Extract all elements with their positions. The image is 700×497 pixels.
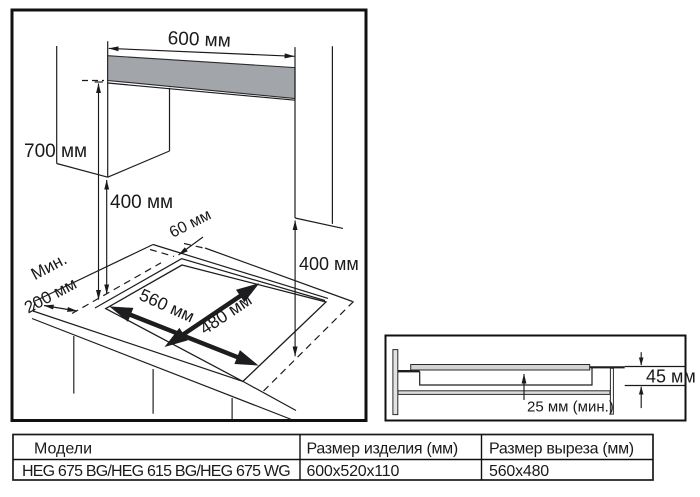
svg-text:600x520x110: 600x520x110	[307, 463, 400, 480]
svg-text:400 мм: 400 мм	[110, 192, 173, 213]
svg-text:25 мм (мин.): 25 мм (мин.)	[527, 399, 614, 416]
svg-text:Размер изделия (мм): Размер изделия (мм)	[307, 441, 458, 458]
svg-text:600 мм: 600 мм	[167, 28, 231, 52]
svg-text:HEG 675 BG/HEG 615 BG/HEG 675: HEG 675 BG/HEG 615 BG/HEG 675 WG	[22, 463, 290, 480]
svg-text:45 мм: 45 мм	[646, 367, 696, 387]
svg-text:700 мм: 700 мм	[24, 141, 87, 162]
svg-text:560x480: 560x480	[489, 463, 549, 480]
svg-text:400 мм: 400 мм	[299, 254, 359, 274]
svg-text:Размер выреза (мм): Размер выреза (мм)	[489, 441, 634, 458]
svg-text:Модели: Модели	[34, 441, 92, 458]
